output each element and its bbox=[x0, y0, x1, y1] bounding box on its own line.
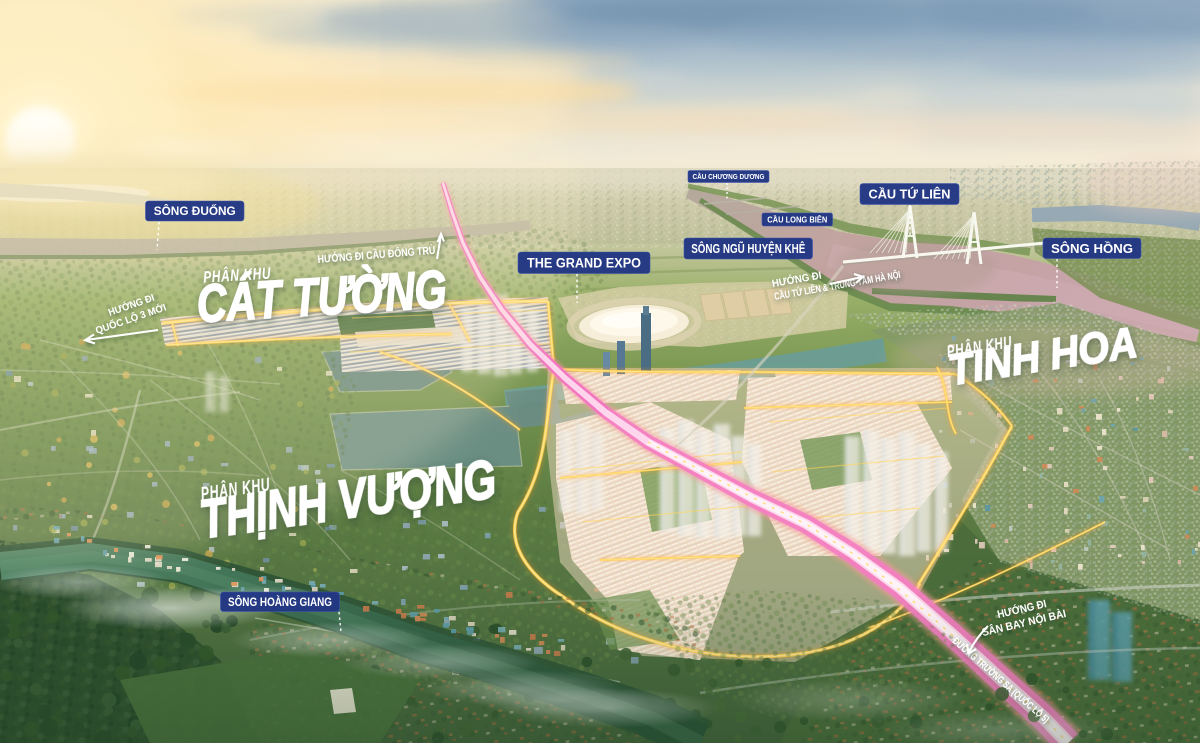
svg-text:CẦU LONG BIÊN: CẦU LONG BIÊN bbox=[767, 214, 827, 224]
svg-text:SÔNG HOÀNG GIANG: SÔNG HOÀNG GIANG bbox=[228, 596, 332, 609]
svg-text:SÔNG ĐUỐNG: SÔNG ĐUỐNG bbox=[154, 204, 236, 218]
svg-text:CẦU TỨ LIÊN: CẦU TỨ LIÊN bbox=[869, 187, 951, 202]
svg-text:CẦU CHƯƠNG DƯƠNG: CẦU CHƯƠNG DƯƠNG bbox=[693, 171, 765, 181]
svg-text:SÔNG NGŨ HUYỆN KHÊ: SÔNG NGŨ HUYỆN KHÊ bbox=[691, 241, 805, 256]
svg-text:SÔNG HỒNG: SÔNG HỒNG bbox=[1051, 241, 1133, 256]
svg-text:THE GRAND EXPO: THE GRAND EXPO bbox=[527, 256, 641, 271]
